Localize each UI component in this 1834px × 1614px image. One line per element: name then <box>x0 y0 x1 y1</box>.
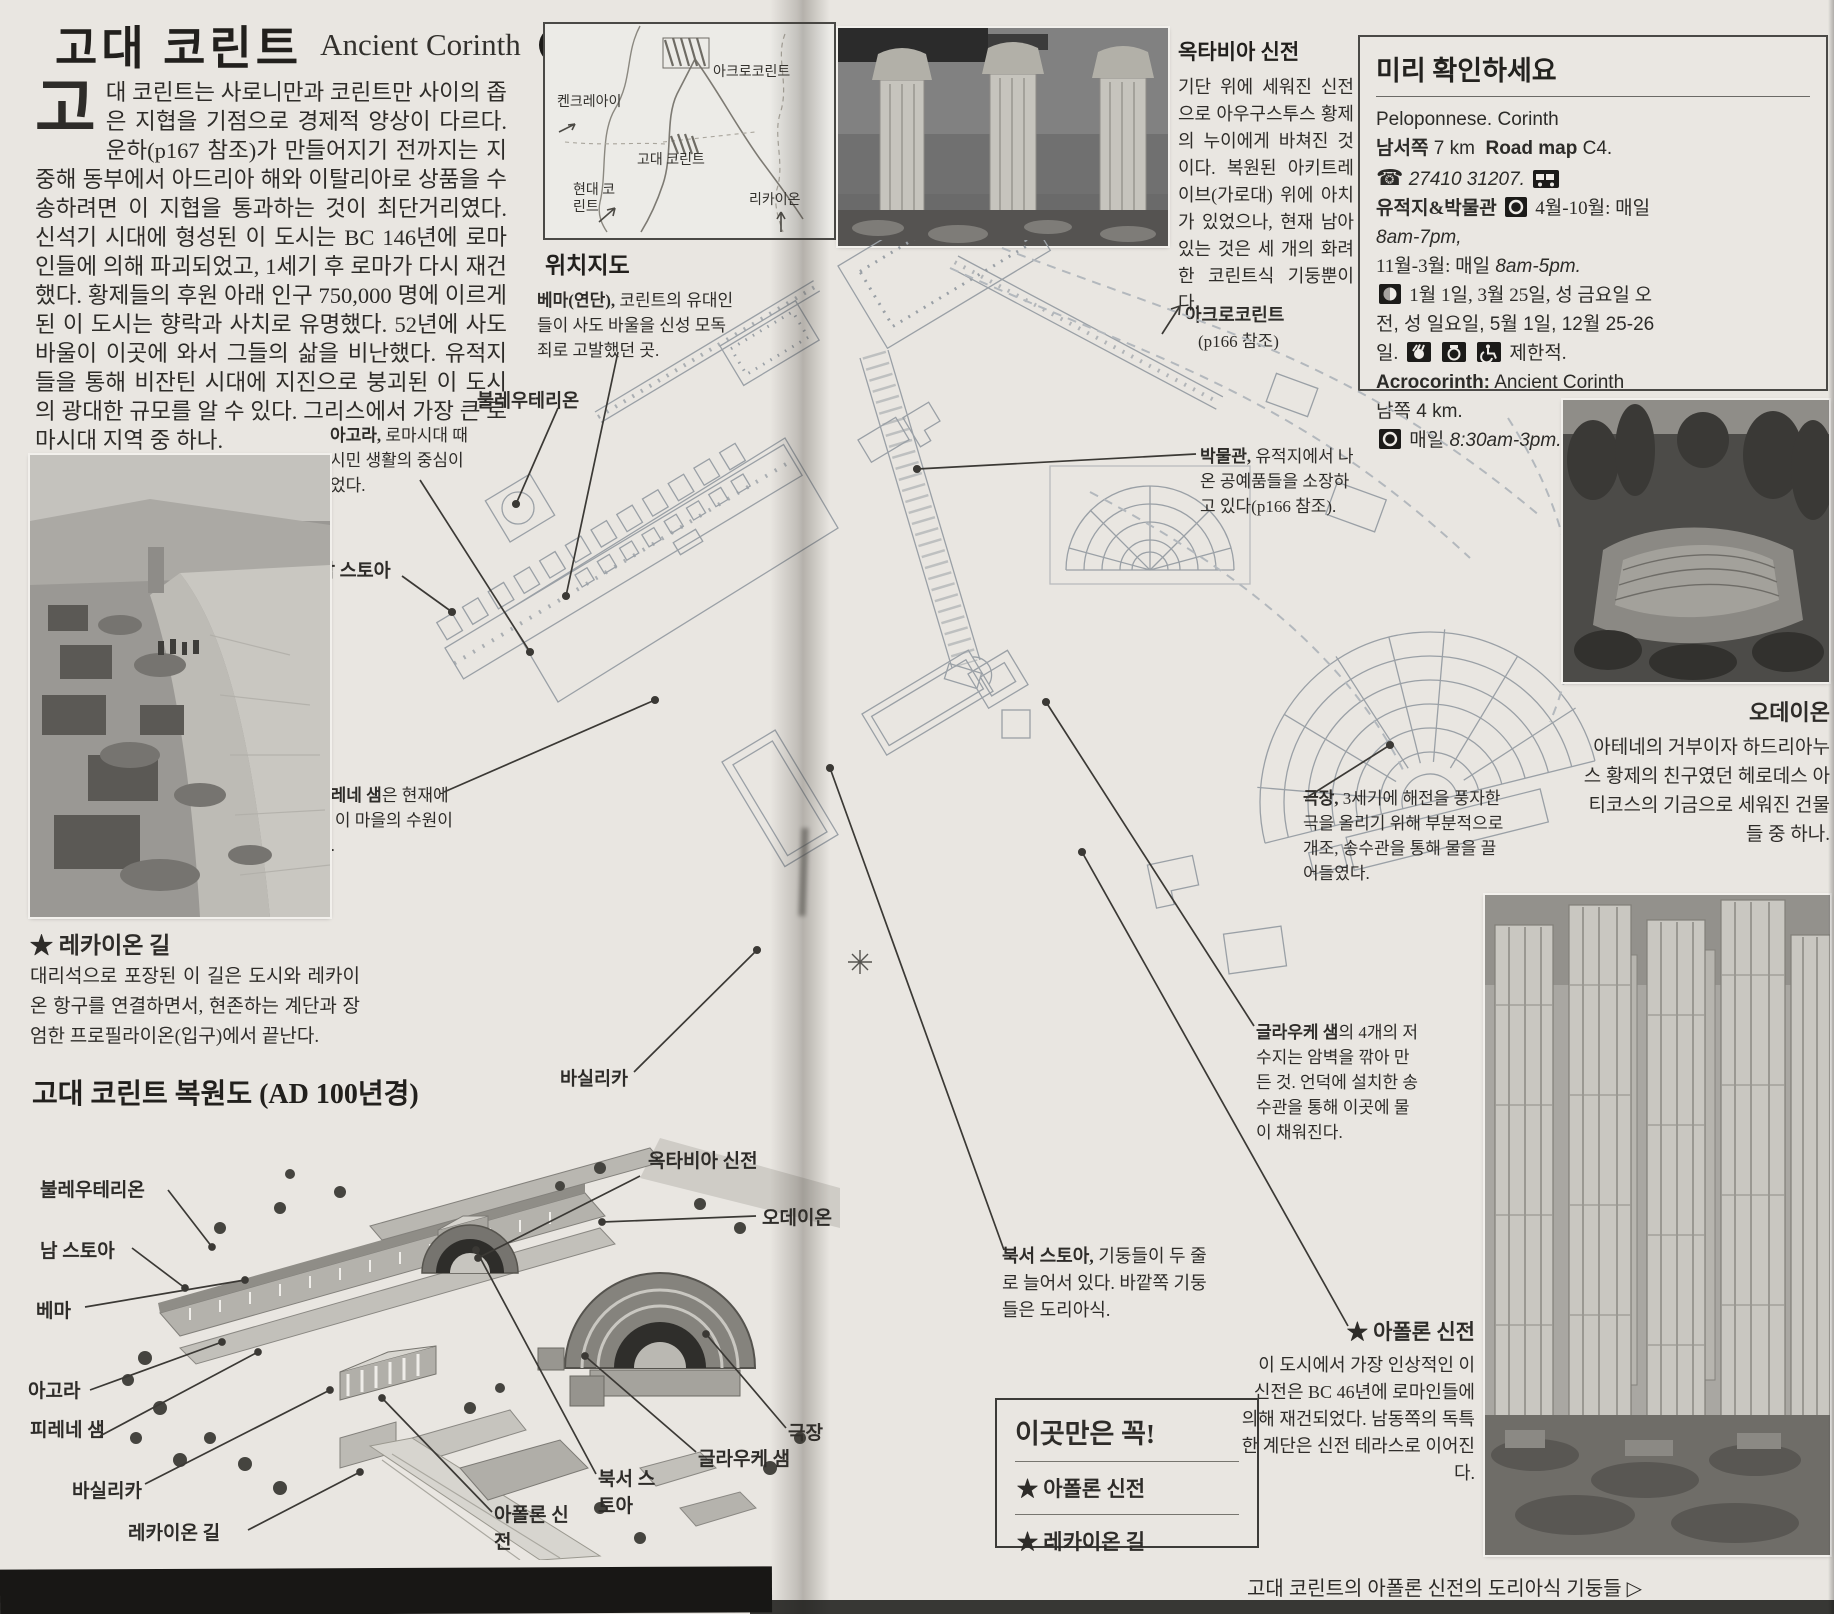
must-see-title: 이곳만은 꼭! <box>1015 1412 1239 1462</box>
museum-plan <box>858 399 946 473</box>
temple-of-octavia-photo-art <box>838 28 1168 246</box>
map-label-ancient-corinth: 고대 코린트 <box>637 152 705 169</box>
recon-label-apollo: 아폴론 신전 <box>494 1502 576 1556</box>
open-hours-icon <box>1505 197 1527 217</box>
checklist-phone-row: ☎ 27410 31207. <box>1376 163 1810 194</box>
phone-icon: ☎ <box>1376 165 1403 190</box>
scan-edge-bar-left <box>0 1566 772 1614</box>
checklist-roadmap-row: 남서쪽 7 km Road map C4. <box>1376 134 1810 163</box>
odeion-photo <box>1563 400 1829 682</box>
lechaion-caption-title: ★ 레카이온 길 <box>30 926 170 960</box>
must-see-box: 이곳만은 꼭! ★ 아폴론 신전 ★ 레카이온 길 <box>995 1398 1259 1548</box>
must-see-item-apollo: ★ 아폴론 신전 <box>1015 1462 1239 1515</box>
northeast-colonnade-plan <box>951 256 1222 409</box>
recon-label-south-stoa: 남 스토아 <box>40 1236 115 1263</box>
page-title: 고대 코린트 <box>55 12 302 78</box>
recon-label-octavia: 옥타비아 신전 <box>648 1148 758 1175</box>
recon-label-bouleuterion: 불레우테리온 <box>40 1175 145 1202</box>
reconstruction-title: 고대 코린트 복원도 (AD 100년경) <box>32 1072 419 1112</box>
must-see-item-lechaion: ★ 레카이온 길 <box>1015 1515 1239 1567</box>
plan-label-peirene: 피레네 샘은 현재에도 이 마을의 수원이다. <box>315 783 463 858</box>
apollo-caption-title: ★ 아폴론 신전 <box>1240 1316 1475 1346</box>
acrocorinth-hatch <box>663 38 709 68</box>
recon-label-peirene: 피레네 샘 <box>30 1418 106 1444</box>
odeion-caption: 오데이온 아테네의 거부이자 하드리아누스 황제의 친구였던 헤로데스 아티코스… <box>1580 695 1830 849</box>
plan-label-agora-lead: 아고라, <box>330 426 381 445</box>
ancient-corinth-hatch <box>671 134 698 154</box>
reconstruction-buildings <box>158 1138 840 1560</box>
bema-plan <box>673 529 702 554</box>
checklist-roadmap-value: C4. <box>1583 138 1613 159</box>
plan-label-glauke: 글라우케 샘의 4개의 저수지는 암벽을 깎아 만든 것. 언덕에 설치한 송수… <box>1256 1020 1424 1145</box>
bus-icon <box>1533 170 1559 188</box>
guidebook-page: 고대 코린트 Ancient Corinth 1 고대 코린트는 사로니만과 코… <box>0 0 1834 1614</box>
julian-basilica-plan <box>862 645 1001 755</box>
odeion-photo-art <box>1563 400 1829 682</box>
octavia-caption-title: 옥타비아 신전 <box>1178 36 1354 66</box>
lechaion-caption-body: 대리석으로 포장된 이 길은 도시와 레카이온 항구를 연결하면서, 현존하는 … <box>30 962 360 1052</box>
plan-label-basilica: 바실리카 <box>560 1068 628 1093</box>
footer-photo-caption: 고대 코린트의 아폴론 신전의 도리아식 기둥들 ▷ <box>1150 1572 1642 1601</box>
checklist-region: Peloponnese. Corinth <box>1376 105 1810 134</box>
plan-label-theatre-lead: 극장, <box>1303 789 1339 808</box>
plan-label-nw-stoa: 북서 스토아, 기둥들이 두 줄로 늘어서 있다. 바깥쪽 기둥들은 도리아식. <box>1002 1243 1217 1324</box>
checklist-roadmap-label: Road map <box>1485 138 1577 159</box>
page-fold-shadow <box>770 0 830 1614</box>
page-right-edge <box>1828 0 1834 1614</box>
compass-star <box>848 950 872 974</box>
recon-label-lechaion-way: 레카이온 길 <box>128 1518 220 1545</box>
lechaion-way-photo-art <box>30 455 330 917</box>
intro-dropcap: 고 <box>35 78 106 138</box>
lechaion-way-photo <box>30 455 330 917</box>
recon-label-agora: 아고라 <box>28 1376 80 1403</box>
plan-label-bouleuterion: 불레우테리온 <box>477 390 579 415</box>
plan-label-glauke-lead: 글라우케 샘 <box>1256 1023 1338 1042</box>
glauke-plan <box>1002 710 1030 738</box>
page-header: 고대 코린트 Ancient Corinth 1 <box>55 12 621 78</box>
site-plan-drawing <box>390 240 1620 1130</box>
checklist-hours-a: 4월-10월: 매일 <box>1535 198 1650 219</box>
checklist-direction: 남서쪽 <box>1376 138 1428 159</box>
map-label-modern-corinth: 현대 코린트 <box>573 182 625 216</box>
checklist-phone: 27410 31207. <box>1409 169 1525 190</box>
recon-label-nw-stoa: 북서 스토아 <box>598 1466 670 1520</box>
checklist-distance: 7 km <box>1434 138 1475 159</box>
apollo-caption-body: 이 도시에서 가장 인상적인 이 신전은 BC 46년에 로마인들에 의해 재건… <box>1240 1352 1475 1487</box>
apollo-temple-photo-art <box>1485 895 1830 1555</box>
recon-label-bema: 베마 <box>36 1296 71 1323</box>
checklist-title: 미리 확인하세요 <box>1376 49 1810 97</box>
temple-of-octavia-photo <box>838 28 1168 246</box>
apollo-caption: ★ 아폴론 신전 이 도시에서 가장 인상적인 이 신전은 BC 46년에 로마… <box>1240 1316 1475 1487</box>
page-subtitle: Ancient Corinth <box>320 27 521 63</box>
recon-label-basilica: 바실리카 <box>72 1476 142 1503</box>
plan-label-agora: 아고라, 로마시대 때 시민 생활의 중심이 었다. <box>330 423 482 498</box>
plan-label-museum-lead: 박물관, <box>1200 447 1251 466</box>
checklist-site-label: 유적지&박물관 <box>1376 198 1497 219</box>
odeion-caption-title: 오데이온 <box>1580 695 1830 727</box>
lechaion-road-plan <box>860 350 980 668</box>
map-label-kenchreai: 켄크레아이 <box>557 94 621 111</box>
plan-label-theatre: 극장, 3세기에 해전을 풍자한 극을 올리기 위해 부분적으로 개조, 송수관… <box>1303 786 1511 886</box>
odeion-caption-body: 아테네의 거부이자 하드리아누스 황제의 친구였던 헤로데스 아티코스의 기금으… <box>1580 733 1830 849</box>
scan-edge-bar-right <box>750 1600 1834 1614</box>
apollo-temple-photo <box>1485 895 1830 1555</box>
south-stoa-plan <box>432 422 803 679</box>
checklist-hours-row1: 유적지&박물관 4월-10월: 매일 <box>1376 194 1810 223</box>
bouleuterion-plan <box>502 492 534 524</box>
reconstruction-drawing <box>40 1108 850 1560</box>
plan-label-museum: 박물관, 유적지에서 나온 공예품들을 소장하고 있다(p166 참조). <box>1200 444 1362 519</box>
plan-label-nw-stoa-lead: 북서 스토아, <box>1002 1246 1094 1266</box>
